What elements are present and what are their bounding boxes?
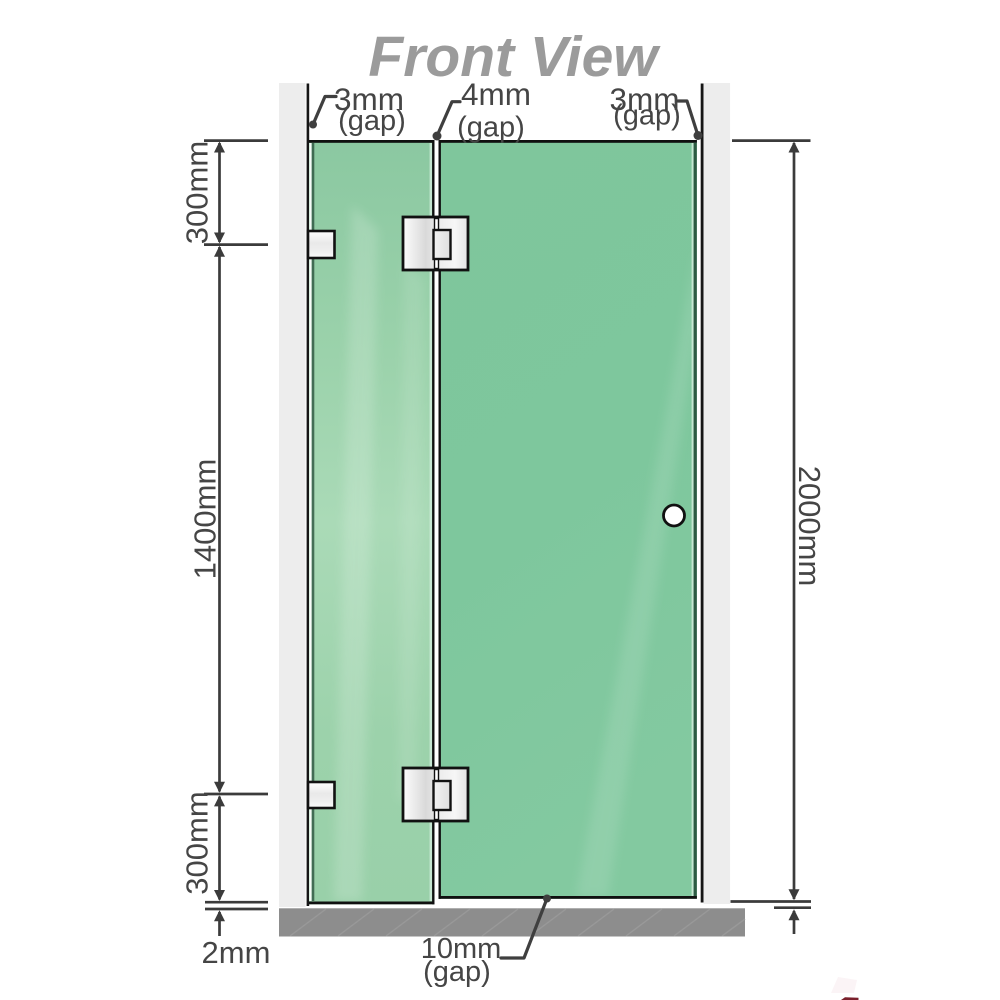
svg-text:300mm: 300mm: [180, 141, 215, 244]
svg-text:(gap): (gap): [613, 100, 681, 132]
svg-text:2000mm: 2000mm: [792, 466, 827, 587]
svg-text:(gap): (gap): [338, 105, 406, 137]
svg-text:300mm: 300mm: [180, 791, 215, 894]
svg-text:2mm: 2mm: [202, 935, 271, 970]
svg-text:1400mm: 1400mm: [188, 459, 223, 580]
svg-text:(gap): (gap): [457, 112, 525, 144]
svg-text:(gap): (gap): [423, 956, 491, 988]
svg-text:4mm: 4mm: [461, 76, 531, 112]
